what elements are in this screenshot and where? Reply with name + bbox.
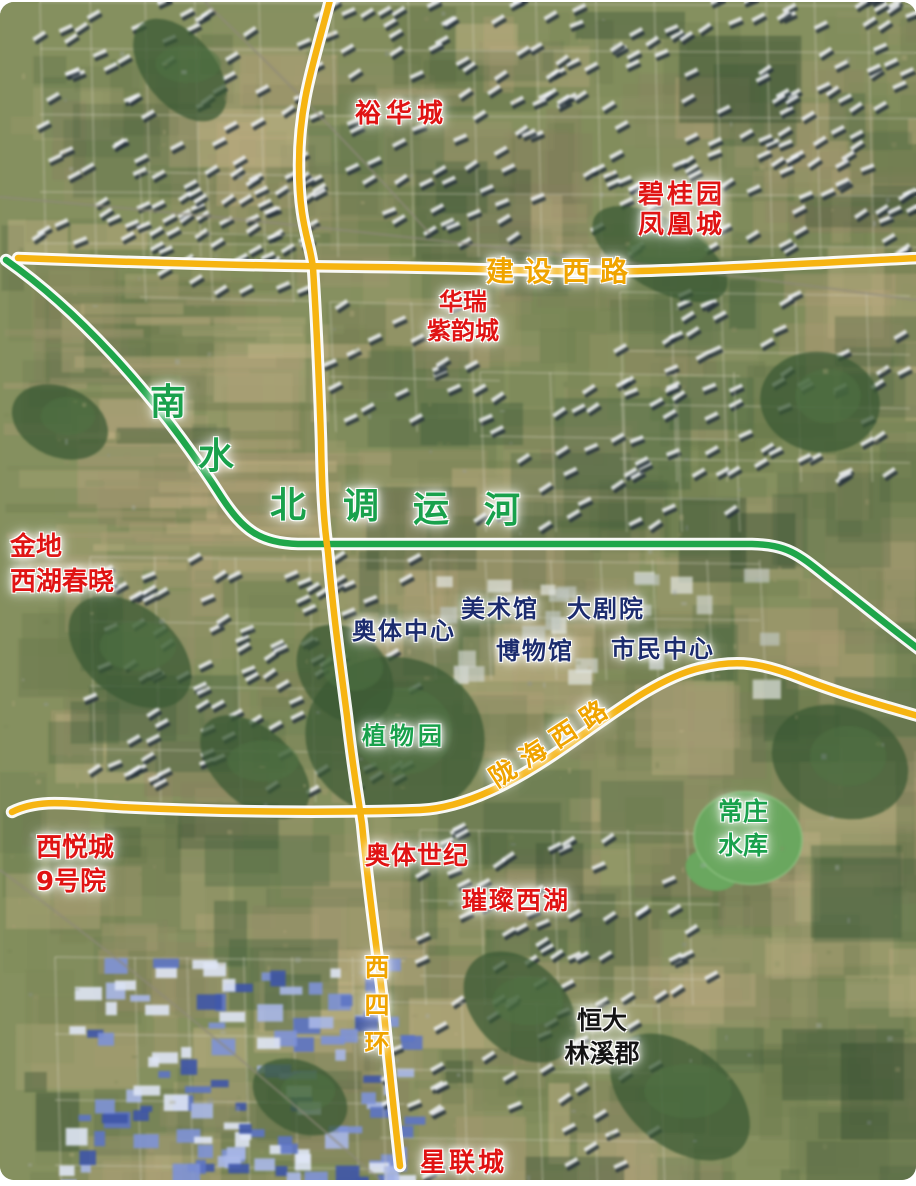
label-changzhuang-shuiku: 常庄 水库: [710, 795, 776, 863]
label-jindi-xihuchunxiao: 金地 西湖春晓: [10, 530, 114, 600]
label-canal-char-nan: 南: [150, 378, 186, 428]
satellite-map: 裕华城 碧桂园 凤凰城 建设西路 华瑞 紫韵城 南 水 北 调 运 河 金地 西…: [0, 2, 916, 1180]
label-canal-char-shui: 水: [198, 432, 234, 482]
label-shimin-zhongxin: 市民中心: [611, 633, 715, 667]
label-huarui-ziyuncheng: 华瑞 紫韵城: [413, 288, 513, 346]
label-dajuyuan: 大剧院: [567, 593, 645, 627]
label-road-xisihuan: 西四环: [358, 954, 393, 1068]
label-zhiwuyuan: 植物园: [362, 720, 446, 754]
satellite-basemap: [0, 2, 916, 1180]
label-canal-char-bei: 北: [270, 481, 306, 531]
label-road-jianshexilu: 建设西路: [486, 252, 638, 291]
label-biguiyuan-fenghuangcheng: 碧桂园 凤凰城: [638, 181, 725, 241]
label-canal-char-diao: 调: [343, 482, 379, 532]
label-canal-char-he: 河: [484, 486, 520, 536]
label-hengda-linxijun: 恒大 林溪郡: [558, 1005, 646, 1070]
label-canal-char-yun: 运: [413, 485, 449, 535]
label-aoti-zhongxin: 奥体中心: [352, 615, 456, 649]
label-aoti-shiji: 奥体世纪: [365, 838, 469, 873]
label-cuican-xihu: 璀璨西湖: [462, 883, 570, 918]
label-xinglian-cheng: 星联城: [420, 1145, 507, 1180]
label-meishuguan: 美术馆: [461, 593, 539, 627]
label-yuhuacheng: 裕华城: [355, 96, 448, 132]
label-xiyuecheng-9haoyuan: 西悦城 9号院: [36, 832, 114, 900]
label-bowuguan: 博物馆: [496, 635, 574, 669]
